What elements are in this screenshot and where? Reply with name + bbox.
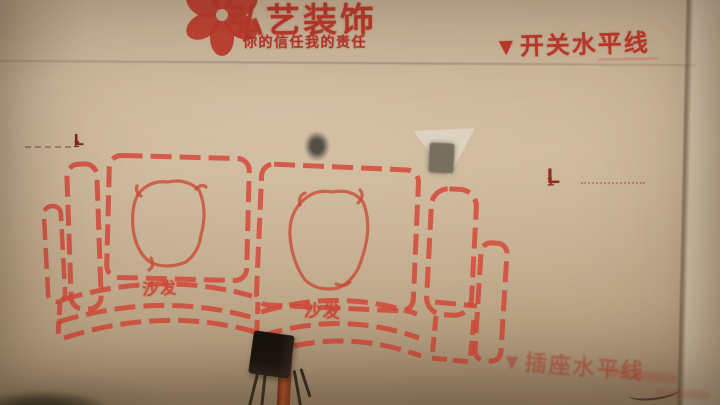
sofa-stencil-drawing — [0, 0, 720, 405]
sofa-outline-strokes — [43, 155, 507, 362]
reference-dash-left — [25, 146, 71, 148]
line-label-l2: L2 — [74, 132, 79, 150]
company-slogan: 你的信任我的责任 — [243, 32, 367, 52]
electrical-junction-box — [248, 330, 295, 378]
switch-level-label: ▼开关水平线 — [494, 23, 651, 62]
reference-dash-right — [581, 182, 645, 184]
floor-debris — [0, 384, 132, 405]
line-label-l1: L1 — [547, 165, 554, 189]
wall-hole-mark — [300, 122, 334, 166]
wall-photo-scene: 弘艺装饰 你的信任我的责任 ▼开关水平线 ▼插座水平线 L2 L1 沙发 沙发 — [0, 0, 720, 405]
sofa-label-left: 沙发 — [141, 274, 178, 300]
sofa-label-right: 沙发 — [304, 296, 343, 322]
anchor-box-mark — [428, 142, 455, 173]
